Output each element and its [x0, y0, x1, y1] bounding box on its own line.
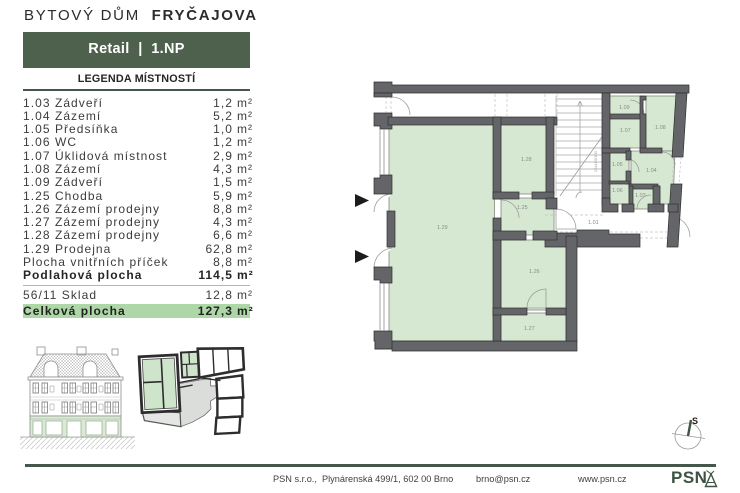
svg-text:1.28: 1.28: [521, 157, 532, 163]
svg-text:1.01: 1.01: [588, 220, 599, 226]
svg-text:1.05: 1.05: [612, 162, 623, 168]
svg-text:1.04: 1.04: [646, 168, 657, 174]
svg-text:1.08: 1.08: [655, 125, 666, 131]
svg-text:1.07: 1.07: [620, 128, 631, 134]
svg-text:1.25: 1.25: [517, 205, 528, 211]
svg-text:1.26: 1.26: [529, 269, 540, 275]
svg-text:1.27: 1.27: [524, 326, 535, 332]
svg-text:1.03: 1.03: [635, 193, 646, 199]
svg-text:1.06: 1.06: [612, 188, 623, 194]
svg-text:S: S: [692, 416, 698, 426]
svg-text:25x160/300: 25x160/300: [593, 150, 598, 172]
svg-text:1.29: 1.29: [437, 225, 448, 231]
svg-text:1.09: 1.09: [619, 105, 630, 111]
